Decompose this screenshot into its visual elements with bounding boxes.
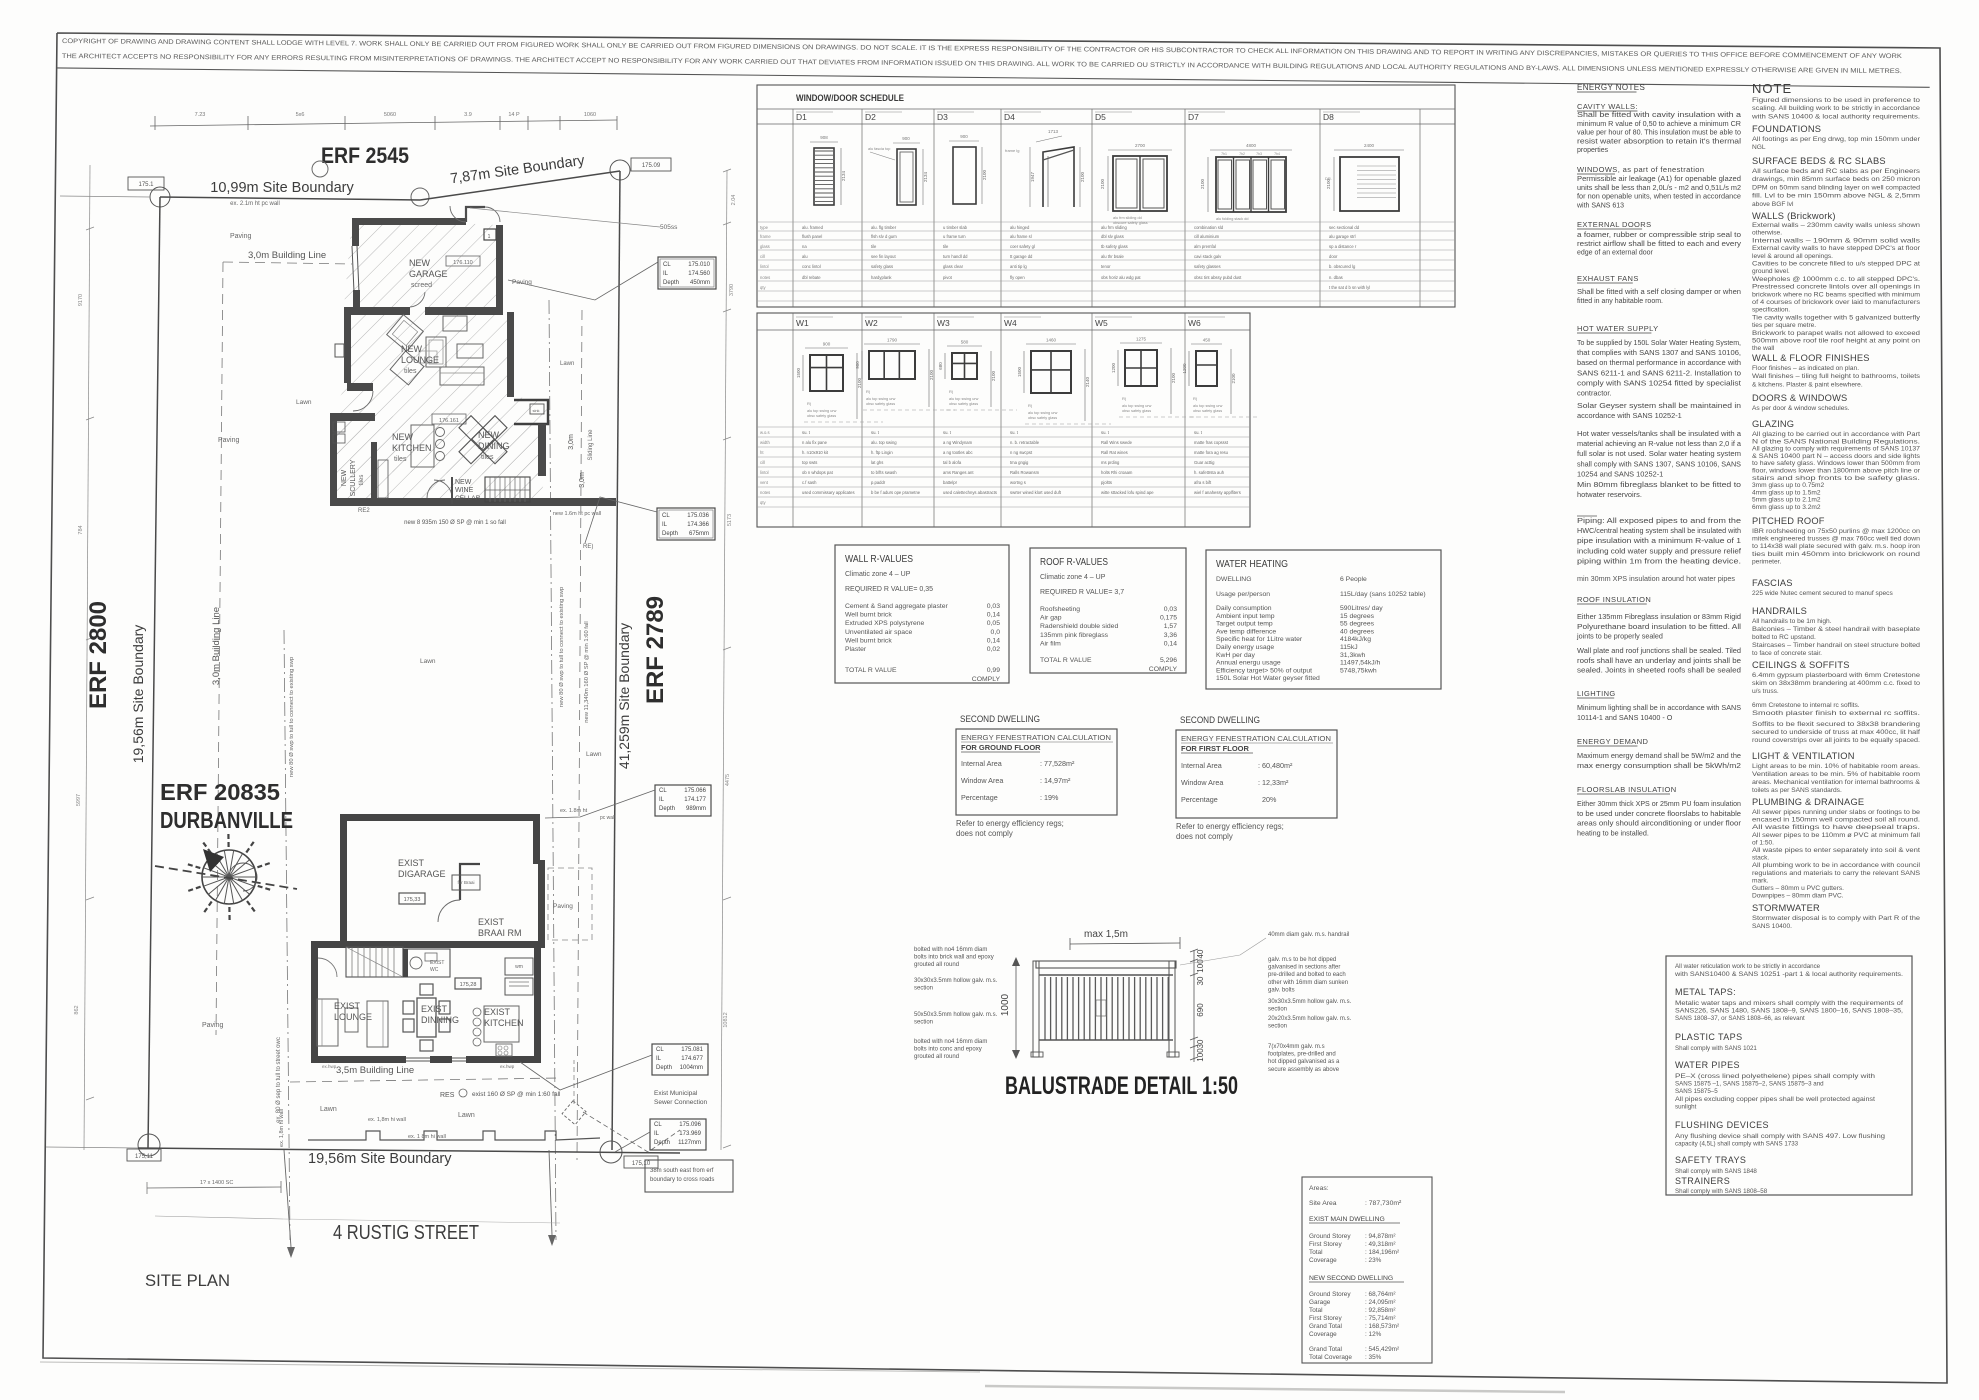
svg-text:KITCHEN: KITCHEN [484, 1018, 524, 1028]
svg-text:Grand Total: Grand Total [1309, 1323, 1342, 1330]
svg-text:lintol: lintol [760, 264, 769, 269]
svg-text:Window Area: Window Area [961, 776, 1003, 785]
svg-text:DR.: DR. [1325, 176, 1332, 181]
svg-text:matte fora ag resu: matte fora ag resu [1194, 450, 1229, 455]
svg-text:TOTAL R VALUE: TOTAL R VALUE [845, 667, 897, 674]
svg-text:580: 580 [961, 340, 969, 345]
svg-text:Lawn: Lawn [296, 399, 312, 406]
svg-text:1500: 1500 [1017, 366, 1022, 377]
svg-text:frame: frame [760, 234, 771, 239]
svg-text:cill aluminium: cill aluminium [1194, 234, 1220, 239]
svg-text:Depth: Depth [656, 1065, 672, 1071]
svg-text:a ng tootles abc: a ng tootles abc [943, 450, 973, 455]
svg-text:alu: alu [802, 254, 808, 259]
svg-text:hot dipped galvanised as a: hot dipped galvanised as a [1268, 1059, 1340, 1065]
svg-text:2400: 2400 [1364, 143, 1375, 148]
svg-text:Either 135mm Fibreglass insula: Either 135mm Fibreglass insulation or 83… [1577, 612, 1741, 621]
svg-text:ties built min 450mm into bric: ties built min 450mm into brickwork on r… [1752, 551, 1920, 558]
svg-text:862: 862 [74, 1005, 80, 1014]
svg-text:2100: 2100 [982, 169, 987, 180]
svg-text:Usage per/person: Usage per/person [1216, 591, 1270, 598]
svg-text:225 wide Nutec cement secured: 225 wide Nutec cement secured to manuf s… [1752, 590, 1893, 597]
svg-text:Grand Total: Grand Total [1309, 1346, 1342, 1353]
svg-text:175.096: 175.096 [679, 1122, 701, 1128]
svg-text:0,175: 0,175 [1160, 615, 1177, 622]
svg-text:hotwater reservoirs.: hotwater reservoirs. [1577, 490, 1642, 499]
svg-text:does not comply: does not comply [956, 829, 1013, 838]
svg-text:galv. bolts: galv. bolts [1268, 987, 1295, 993]
svg-text:& kitchens. Plaster & paint el: & kitchens. Plaster & paint elsewhere. [1752, 381, 1863, 388]
svg-text:sec sectional dd: sec sectional dd [1329, 225, 1360, 230]
svg-text:hardyplank: hardyplank [871, 275, 892, 280]
svg-text:Ave temp difference: Ave temp difference [1216, 628, 1276, 635]
svg-text:0,05: 0,05 [987, 620, 1000, 627]
svg-text:METAL TAPS:: METAL TAPS: [1675, 987, 1736, 997]
svg-text:4184kJ/kg: 4184kJ/kg [1340, 636, 1371, 643]
svg-text:FOR GROUND FLOOR: FOR GROUND FLOOR [961, 743, 1041, 752]
svg-text:Internal Area: Internal Area [1181, 761, 1222, 770]
svg-text:2100: 2100 [1100, 178, 1105, 189]
svg-text:Internal Area: Internal Area [961, 759, 1002, 768]
svg-text:4800: 4800 [1246, 143, 1257, 148]
svg-text:30x30x3.5mm hollow galv. m.s.: 30x30x3.5mm hollow galv. m.s. [1268, 999, 1352, 1005]
svg-text:alu top swing urw: alu top swing urw [866, 397, 896, 401]
svg-text:15 degrees: 15 degrees [1340, 613, 1375, 620]
svg-text:FASCIAS: FASCIAS [1752, 578, 1793, 588]
svg-text:Paving: Paving [553, 903, 573, 910]
svg-text:175,10: 175,10 [632, 1161, 651, 1167]
svg-text:wm: wm [515, 964, 523, 970]
svg-text:NEW SECOND DWELLING: NEW SECOND DWELLING [1309, 1275, 1393, 1282]
svg-text:of 1:50.: of 1:50. [1752, 839, 1774, 846]
svg-text:R): R) [866, 389, 871, 394]
svg-text:stack.: stack. [1752, 855, 1769, 862]
svg-text:tile: tile [943, 244, 949, 249]
svg-text:Rall Wins swede: Rall Wins swede [1101, 440, 1133, 445]
svg-text:obsc safety glass: obsc safety glass [1193, 409, 1222, 413]
svg-text:a foamer, rubber or compressib: a foamer, rubber or compressible strip s… [1577, 232, 1741, 239]
svg-text:590Litres/ day: 590Litres/ day [1340, 605, 1383, 612]
svg-text:All glazing to comply with req: All glazing to comply with requirements … [1752, 446, 1920, 453]
svg-text:does not comply: does not comply [1176, 832, 1233, 841]
svg-text:ENERGY FENESTRATION CALCULATIO: ENERGY FENESTRATION CALCULATION [1181, 736, 1331, 743]
svg-text:su. t: su. t [1101, 430, 1110, 435]
svg-text:SECOND DWELLING: SECOND DWELLING [960, 714, 1040, 725]
svg-text:55 degrees: 55 degrees [1340, 621, 1375, 628]
svg-text:2.04: 2.04 [731, 195, 737, 206]
svg-text:Metalic water taps and mixers: Metalic water taps and mixers shall comp… [1675, 1000, 1903, 1007]
svg-text:REQUIRED R VALUE= 0,35: REQUIRED R VALUE= 0,35 [845, 586, 933, 593]
svg-text:SECOND DWELLING: SECOND DWELLING [1180, 715, 1260, 726]
svg-text:1000: 1000 [1000, 993, 1011, 1016]
svg-text:NOTE: NOTE [1752, 81, 1792, 96]
svg-text:anti tip lg: anti tip lg [1010, 264, 1027, 269]
svg-text:7(x70x4mm galv. m.s: 7(x70x4mm galv. m.s [1268, 1044, 1325, 1050]
svg-text:5748,75kwh: 5748,75kwh [1340, 667, 1377, 674]
svg-text:Ground Storey: Ground Storey [1309, 1291, 1351, 1298]
svg-text:3790: 3790 [729, 284, 735, 296]
svg-text:tenor: tenor [1101, 264, 1111, 269]
svg-text:swrter wined klort used duft: swrter wined klort used duft [1010, 490, 1062, 495]
svg-text:h. safettrsta auh: h. safettrsta auh [1194, 470, 1225, 475]
svg-text:NEW: NEW [341, 469, 348, 486]
svg-text:W4: W4 [1004, 318, 1017, 328]
svg-text:alu fascia top: alu fascia top [868, 147, 890, 151]
svg-text:tiles: tiles [394, 456, 407, 463]
svg-text:with SANS10400 & SANS 10251 -p: with SANS10400 & SANS 10251 -part 1 & lo… [1674, 971, 1903, 978]
svg-text:EXTERNAL DOORS: EXTERNAL DOORS [1577, 220, 1652, 229]
svg-text:u timber slab: u timber slab [943, 225, 968, 230]
svg-text:grouted all round: grouted all round [914, 1054, 959, 1060]
svg-text:Sewer Connection: Sewer Connection [654, 1099, 707, 1106]
svg-text:alu. top swing: alu. top swing [871, 440, 897, 445]
svg-text:100: 100 [1196, 1048, 1205, 1062]
svg-text:footplates, pre-drilled and: footplates, pre-drilled and [1268, 1052, 1336, 1058]
svg-text:top swts: top swts [802, 460, 817, 465]
svg-text:1127mm: 1127mm [678, 1140, 701, 1146]
svg-text:matte fras copssst: matte fras copssst [1194, 440, 1229, 445]
svg-text:Minimum lighting shall be in a: Minimum lighting shall be in accordance … [1577, 703, 1741, 712]
svg-text:W1: W1 [796, 318, 809, 328]
svg-text:ERF 20835: ERF 20835 [160, 779, 280, 805]
svg-text:0,14: 0,14 [987, 612, 1000, 619]
svg-text:115kJ: 115kJ [1340, 644, 1358, 651]
svg-text:175,28: 175,28 [460, 982, 477, 988]
svg-text:level & around all openings.: level & around all openings. [1752, 253, 1833, 260]
svg-text:afra s bift: afra s bift [1194, 480, 1212, 485]
svg-text:coer safety gl: coer safety gl [1010, 244, 1035, 249]
svg-text:joints to be properly sealed: joints to be properly sealed [1576, 632, 1663, 641]
svg-text:WC: WC [430, 967, 439, 973]
svg-text:To be supplied by 150L Solar W: To be supplied by 150L Solar Water Heati… [1577, 338, 1741, 347]
svg-text:: 168,573m²: : 168,573m² [1365, 1323, 1399, 1330]
svg-text:drawings, min 85mm surface bed: drawings, min 85mm surface beds on 250 m… [1752, 176, 1920, 183]
svg-text:alm premfal: alm premfal [1194, 244, 1216, 249]
svg-text:na: na [802, 244, 807, 249]
svg-text:1947: 1947 [1030, 171, 1035, 182]
svg-text:675mm: 675mm [689, 531, 709, 537]
svg-text:contractor.: contractor. [1577, 389, 1612, 398]
svg-text:3,0m Building Line: 3,0m Building Line [248, 250, 326, 261]
svg-text:Balconies – Timber & steel han: Balconies – Timber & steel handrail with… [1752, 626, 1920, 633]
svg-text:n ng swcpst: n ng swcpst [1010, 450, 1033, 455]
svg-text:b. obscured lg: b. obscured lg [1329, 264, 1356, 269]
svg-text:2134: 2134 [841, 170, 846, 181]
svg-text:150L Solar Hot Water geyser fi: 150L Solar Hot Water geyser fitted [1216, 675, 1320, 682]
svg-text:7h1: 7h1 [1221, 152, 1227, 156]
svg-text:Unventilated air space: Unventilated air space [845, 629, 912, 636]
svg-text:bolts into conc and epoxy: bolts into conc and epoxy [914, 1047, 982, 1053]
svg-text:: 49,318m²: : 49,318m² [1365, 1241, 1396, 1248]
svg-text:WALL & FLOOR FINISHES: WALL & FLOOR FINISHES [1752, 353, 1870, 363]
svg-text:175,33: 175,33 [404, 897, 421, 903]
svg-text:174.560: 174.560 [688, 271, 710, 277]
svg-text:1,57: 1,57 [1164, 623, 1177, 630]
svg-text:Ground Storey: Ground Storey [1309, 1233, 1351, 1240]
svg-text:wortng s: wortng s [1010, 480, 1026, 485]
svg-text:IL: IL [662, 522, 668, 528]
svg-text:0,03: 0,03 [987, 603, 1000, 610]
svg-text:680: 680 [938, 362, 943, 370]
svg-text:Piping: All exposed pipes to a: Piping: All exposed pipes to and from th… [1577, 516, 1741, 525]
svg-text:qty: qty [760, 500, 766, 505]
svg-text:40mm diam galv. m.s. handrail: 40mm diam galv. m.s. handrail [1268, 932, 1349, 938]
svg-text:IL: IL [656, 1056, 662, 1062]
svg-text:to b/fts swash: to b/fts swash [871, 470, 897, 475]
svg-text:RE2: RE2 [358, 508, 370, 514]
svg-text:1200: 1200 [1182, 363, 1187, 374]
svg-text:including cold water supply an: including cold water supply and pressure… [1577, 546, 1742, 555]
svg-text:dbl rebate: dbl rebate [802, 275, 821, 280]
svg-text:for Braai: for Braai [457, 880, 474, 885]
svg-text:sealed. Joints in sheeted roof: sealed. Joints in sheeted roofs shall be… [1577, 666, 1741, 675]
svg-text:edge of an external door: edge of an external door [1577, 250, 1654, 257]
svg-text:SITE PLAN: SITE PLAN [145, 1271, 230, 1290]
svg-text:Total: Total [1309, 1307, 1323, 1314]
svg-text:7h4: 7h4 [1274, 152, 1280, 156]
svg-text:new 80 Ø swp to tull to connec: new 80 Ø swp to tull to connect to exist… [289, 657, 295, 777]
svg-text:6 People: 6 People [1340, 576, 1367, 583]
svg-text:Roofsheeting: Roofsheeting [1040, 606, 1080, 613]
svg-text:4 RUSTIG STREET: 4 RUSTIG STREET [333, 1222, 479, 1244]
svg-text:7h2: 7h2 [1239, 152, 1245, 156]
svg-text:STORMWATER: STORMWATER [1752, 903, 1820, 913]
svg-text:alu frame sl: alu frame sl [1010, 234, 1032, 239]
svg-text:D3: D3 [937, 112, 948, 122]
svg-text:1004mm: 1004mm [680, 1065, 703, 1071]
svg-text:su. t: su. t [871, 430, 880, 435]
svg-text:obsc safety glass: obsc safety glass [807, 414, 836, 418]
svg-text:SANS226, SANS 1480, SANS 1808–: SANS226, SANS 1480, SANS 1808–9, SANS 18… [1675, 1008, 1903, 1015]
svg-text:Shall be fitted with a self cl: Shall be fitted with a self closing damp… [1577, 289, 1741, 296]
svg-text:lintol: lintol [760, 470, 769, 475]
svg-text:Stormwater disposal is to comp: Stormwater disposal is to comply with Pa… [1752, 915, 1920, 922]
svg-text:for non openable units, when t: for non openable units, when tested in a… [1577, 194, 1741, 201]
svg-text:R): R) [1193, 396, 1198, 401]
svg-text:obsc safety glass: obsc safety glass [949, 402, 978, 406]
svg-text:su. t: su. t [1194, 430, 1203, 435]
svg-text:Rall Rat wines: Rall Rat wines [1101, 450, 1128, 455]
svg-text:Garage: Garage [1309, 1299, 1331, 1306]
svg-text:HOT WATER SUPPLY: HOT WATER SUPPLY [1577, 324, 1659, 333]
svg-text:3,36: 3,36 [1164, 632, 1177, 639]
svg-text:All plumbing work to be in acc: All plumbing work to be in accordance wi… [1752, 862, 1921, 869]
svg-text:ground level.: ground level. [1752, 268, 1790, 275]
svg-text:900: 900 [902, 136, 910, 141]
svg-text:EXIST: EXIST [478, 917, 505, 927]
svg-text:mark.: mark. [1752, 877, 1769, 884]
svg-text:su. t: su. t [943, 430, 952, 435]
svg-text:Internal walls – 190mm & 90mm: Internal walls – 190mm & 90mm solid wall… [1752, 237, 1921, 244]
svg-text:max energy consumption shall b: max energy consumption shall be 5kWh/m2 [1577, 761, 1741, 770]
svg-text:EXIST: EXIST [430, 960, 444, 966]
svg-text:174.677: 174.677 [681, 1056, 703, 1062]
svg-text:Any flushing device shall comp: Any flushing device shall comply with SA… [1675, 1133, 1886, 1140]
svg-text:n. b. retractable: n. b. retractable [1010, 440, 1040, 445]
svg-text:restrict airflow shall be fitt: restrict airflow shall be fitted to each… [1577, 241, 1742, 248]
svg-text:: 12,33m²: : 12,33m² [1258, 778, 1289, 787]
svg-text:alu top swing urw: alu top swing urw [1193, 404, 1223, 408]
svg-text:GLAZING: GLAZING [1752, 419, 1794, 429]
svg-text:: 68,764m²: : 68,764m² [1365, 1291, 1396, 1298]
svg-text:regulations and materials to c: regulations and materials to carry the r… [1752, 870, 1921, 877]
svg-text:Percentage: Percentage [961, 793, 998, 802]
svg-text:7h3: 7h3 [1256, 152, 1262, 156]
svg-text:R): R) [1028, 403, 1033, 408]
svg-text:6mm glass up to 3.2m2: 6mm glass up to 3.2m2 [1752, 504, 1821, 511]
svg-text:: 787,730m²: : 787,730m² [1365, 1200, 1402, 1207]
svg-text:Brickwork to parapet walls not: Brickwork to parapet walls not allowed t… [1752, 330, 1920, 337]
svg-text:All footings as per Eng drwg,: All footings as per Eng drwg, top min 15… [1752, 136, 1921, 143]
svg-text:the wall: the wall [1752, 345, 1775, 352]
svg-text:Well burnt brick: Well burnt brick [845, 637, 892, 644]
svg-text:of 4 courses of brickwork over: of 4 courses of brickwork over laid to m… [1752, 299, 1921, 306]
svg-text:Smooth plaster finish to exter: Smooth plaster finish to external rc sof… [1752, 710, 1920, 717]
svg-text:: 19%: : 19% [1040, 793, 1059, 802]
svg-text:NEW: NEW [392, 432, 414, 442]
svg-text:IL: IL [663, 271, 669, 277]
svg-text:BALUSTRADE DETAIL 1:50: BALUSTRADE DETAIL 1:50 [1005, 1072, 1238, 1100]
svg-text:3.9: 3.9 [464, 112, 472, 118]
svg-text:section: section [914, 986, 933, 992]
svg-text:u frame turn: u frame turn [943, 234, 966, 239]
svg-text:that complies with SANS 1307 a: that complies with SANS 1307 and SANS 10… [1577, 348, 1741, 357]
svg-text:ENERGY NOTES: ENERGY NOTES [1577, 83, 1645, 92]
svg-text:see fin layout: see fin layout [871, 254, 897, 259]
svg-text:ex.hwp: ex.hwp [500, 1064, 515, 1069]
svg-text:Ralls Rowansm: Ralls Rowansm [1010, 470, 1040, 475]
svg-text:989mm: 989mm [686, 806, 706, 812]
svg-text:with SANS 10400 & local author: with SANS 10400 & local authority requir… [1751, 113, 1920, 120]
svg-text:3,0m Building Line: 3,0m Building Line [211, 607, 222, 685]
svg-text:glass: glass [760, 244, 770, 249]
svg-text:0,03: 0,03 [1164, 606, 1177, 613]
svg-text:turn handl dd: turn handl dd [943, 254, 968, 259]
svg-text:6.4mm gypsum plasterboard with: 6.4mm gypsum plasterboard with 6mm Crete… [1752, 672, 1920, 679]
svg-text:Coverage: Coverage [1309, 1331, 1337, 1338]
svg-text:5173: 5173 [727, 514, 733, 526]
svg-text:690: 690 [1196, 1003, 1205, 1017]
svg-text:Wall plate and roof junctions: Wall plate and roof junctions shall be s… [1577, 646, 1741, 655]
svg-text:fitted in any habitable room.: fitted in any habitable room. [1577, 298, 1663, 305]
svg-text:2100: 2100 [1200, 178, 1205, 189]
svg-text:20x20x3.5mm hollow galv. m.s.: 20x20x3.5mm hollow galv. m.s. [1268, 1016, 1352, 1022]
svg-text:Paving: Paving [218, 437, 240, 444]
svg-text:Percentage: Percentage [1181, 795, 1218, 804]
svg-text:3,0m: 3,0m [579, 472, 586, 488]
svg-text:properties: properties [1577, 147, 1609, 154]
svg-text:WINE: WINE [455, 487, 474, 494]
svg-text:used commissary applicates: used commissary applicates [802, 490, 855, 495]
svg-text:RES: RES [440, 1092, 455, 1099]
svg-text:WINDOWS, as part of fenestrati: WINDOWS, as part of fenestration [1577, 165, 1704, 174]
svg-text:All handrails to be 1m high.: All handrails to be 1m high. [1752, 618, 1832, 625]
svg-text:All waste fittings to have dee: All waste fittings to have deepseal trap… [1752, 824, 1920, 831]
svg-text:areas. Mechanical ventilation: areas. Mechanical ventilation for intern… [1752, 779, 1921, 786]
svg-text:cill: cill [760, 460, 765, 465]
svg-text:EXIST: EXIST [484, 1007, 511, 1017]
svg-text:Total: Total [1309, 1249, 1323, 1256]
svg-text:tal b alofa: tal b alofa [943, 460, 962, 465]
svg-text:Lawn: Lawn [458, 1112, 475, 1119]
svg-text:5,296: 5,296 [1160, 657, 1177, 664]
svg-text:D5: D5 [1095, 112, 1106, 122]
svg-text:500mm above roof tile roof hei: 500mm above roof tile roof height at any… [1752, 338, 1920, 345]
svg-text:skim on 38x38mm brandering at: skim on 38x38mm brandering at 400mm c.c.… [1752, 680, 1920, 687]
svg-text:W3: W3 [937, 318, 950, 328]
svg-text:galv. m.s to be hot dipped: galv. m.s to be hot dipped [1268, 957, 1336, 963]
svg-text:175.066: 175.066 [684, 788, 706, 794]
svg-text:witte sttacked lofu spind a: witte sttacked lofu spind ape [1101, 490, 1154, 495]
svg-text:& SANS 10400 part N – access d: & SANS 10400 part N – access doors and s… [1752, 453, 1921, 460]
svg-text:19,56m Site Boundary: 19,56m Site Boundary [130, 625, 146, 764]
svg-text:: 14,97m²: : 14,97m² [1040, 776, 1071, 785]
svg-text:ex. 1,8m hi wall: ex. 1,8m hi wall [279, 1109, 285, 1147]
svg-text:N of the SANS National Buildin: N of the SANS National Building Regulati… [1752, 438, 1920, 445]
svg-text:su. t: su. t [802, 430, 811, 435]
svg-text:section: section [1268, 1024, 1287, 1030]
svg-text:W2: W2 [865, 318, 878, 328]
svg-text:Tie cavity walls together with: Tie cavity walls together with 5 galvani… [1752, 314, 1921, 321]
svg-text:External cavity walls to have: External cavity walls to have stepped DP… [1752, 245, 1921, 252]
svg-text:combination sld: combination sld [1194, 225, 1224, 230]
svg-text:Depth: Depth [654, 1140, 670, 1146]
svg-text:a ng Windynam: a ng Windynam [943, 440, 973, 445]
svg-text:exist 160 Ø SP @ min 1:60 fall: exist 160 Ø SP @ min 1:60 fall [472, 1091, 561, 1098]
svg-text:Extruded XPS polystyrene: Extruded XPS polystyrene [845, 620, 925, 627]
svg-text:resist water absorption to ret: resist water absorption to retain it's t… [1577, 138, 1742, 145]
svg-text:tma gngig: tma gngig [1010, 460, 1029, 465]
svg-text:toilets as per SANS standards.: toilets as per SANS standards. [1752, 787, 1842, 794]
svg-text:flsh slv d gurn: flsh slv d gurn [871, 234, 898, 239]
svg-text:above BGF lvl: above BGF lvl [1752, 201, 1794, 208]
svg-text:BRAAI RM: BRAAI RM [478, 928, 522, 938]
svg-text:All sewer pipes to be 110mm ø: All sewer pipes to be 110mm ø PVC at min… [1752, 832, 1921, 839]
svg-text:alu hinged: alu hinged [1010, 225, 1030, 230]
svg-text:6mm Cretestone to internal rc: 6mm Cretestone to internal rc soffits. [1752, 702, 1860, 709]
svg-text:: 24,095m²: : 24,095m² [1365, 1299, 1396, 1306]
svg-text:round coverstrips over all joi: round coverstrips over all joints to be … [1752, 737, 1920, 744]
svg-text:Plaster: Plaster [845, 646, 867, 653]
svg-text:pc wall: pc wall [600, 815, 615, 821]
svg-text:with SANS 613: with SANS 613 [1576, 202, 1624, 209]
svg-text:ex. 1 8m hi wall: ex. 1 8m hi wall [408, 1134, 446, 1140]
svg-text:Depth: Depth [662, 531, 678, 537]
svg-text:175.09: 175.09 [642, 163, 661, 169]
svg-text:COMPLY: COMPLY [1149, 666, 1178, 673]
svg-text:DURBANVILLE: DURBANVILLE [160, 807, 293, 833]
svg-text:: 92,858m²: : 92,858m² [1365, 1307, 1396, 1314]
svg-text:roofs shall have an underlay a: roofs shall have an underlay and joints … [1577, 656, 1741, 665]
svg-text:W6: W6 [1188, 318, 1201, 328]
svg-text:NGL: NGL [1752, 144, 1766, 151]
svg-text:ERF 2545: ERF 2545 [321, 143, 409, 168]
svg-text:SANS 15875–5: SANS 15875–5 [1675, 1088, 1718, 1095]
svg-text:3,5m Building Line: 3,5m Building Line [336, 1065, 414, 1076]
svg-text:Exist Municipal: Exist Municipal [654, 1090, 698, 1097]
svg-text:DINNING: DINNING [421, 1015, 459, 1025]
svg-text:WALLS (Brickwork): WALLS (Brickwork) [1752, 211, 1836, 221]
svg-text:ob n whdops pat: ob n whdops pat [802, 470, 834, 475]
svg-text:obsc tint abssy pubd dust: obsc tint abssy pubd dust [1194, 275, 1242, 280]
svg-text:5060: 5060 [384, 112, 396, 118]
svg-text:secure assembly as above: secure assembly as above [1268, 1067, 1340, 1073]
svg-text:0,02: 0,02 [987, 646, 1000, 653]
svg-text:: 12%: : 12% [1365, 1331, 1382, 1338]
svg-text:SANS 15875 –1, SANS 15875–2, S: SANS 15875 –1, SANS 15875–2, SANS 15875–… [1675, 1081, 1824, 1088]
svg-text:SCULLERY: SCULLERY [350, 459, 357, 496]
svg-text:Target output temp: Target output temp [1216, 621, 1273, 628]
